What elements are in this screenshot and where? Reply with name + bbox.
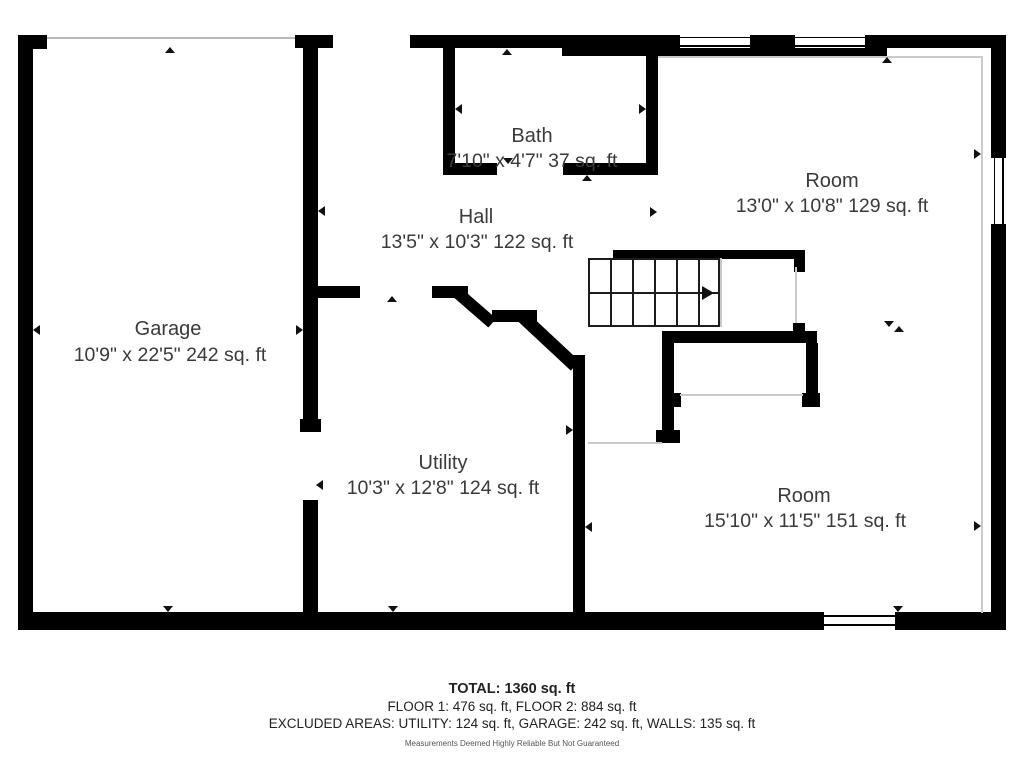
wall-top-between-windows <box>755 35 790 48</box>
wall-top-right <box>870 35 1006 48</box>
window-bottom <box>818 612 901 630</box>
wall-closet-left <box>662 343 674 430</box>
wall-right-lower <box>991 230 1006 630</box>
face-line-passage-bottom <box>588 442 662 444</box>
measure-arrow-mid-down <box>884 321 894 327</box>
measure-arrow-right-room-upper <box>974 149 981 159</box>
room-label-bath: Bath <box>511 125 552 147</box>
measure-arrow-right-garage <box>296 325 303 335</box>
wall-closet-top <box>662 331 817 343</box>
window-right <box>991 152 1006 230</box>
face-line-landing-right <box>795 267 797 323</box>
room-label-utility: Utility <box>419 452 468 474</box>
wall-hall-diag1 <box>452 287 496 328</box>
room-dims-room-upper: 13'0" x 10'8" 129 sq. ft <box>736 196 929 217</box>
wall-top-bath <box>410 35 675 48</box>
measure-arrow-left-bath <box>455 104 462 114</box>
room-label-room-upper: Room <box>805 170 858 192</box>
wall-right-upper <box>991 35 1006 152</box>
wall-bath-right <box>646 48 658 175</box>
wall-garage-top-cap <box>295 35 333 48</box>
face-line-room-right <box>981 56 983 613</box>
measure-arrow-mid-up <box>894 326 904 332</box>
measure-arrow-down-room-lower <box>893 606 903 612</box>
wall-top-inner-strip <box>562 48 887 56</box>
measure-arrow-left-room-lower <box>585 522 592 532</box>
window-top-2 <box>790 35 870 48</box>
room-dims-room-lower: 15'10" x 11'5" 151 sq. ft <box>704 511 906 532</box>
window-top-1 <box>675 35 755 48</box>
room-dims-garage: 10'9" x 22'5" 242 sq. ft <box>74 345 267 366</box>
wall-bottom-left <box>18 612 818 630</box>
stairs-direction-line <box>590 292 718 294</box>
room-dims-bath: 7'10" x 4'7" 37 sq. ft <box>447 151 618 172</box>
measure-arrow-left-garage <box>33 325 40 335</box>
summary-floors: FLOOR 1: 476 sq. ft, FLOOR 2: 884 sq. ft <box>0 698 1024 715</box>
wall-hall-diag2 <box>518 312 580 371</box>
wall-utility-right <box>573 355 585 612</box>
wall-closet-right-cap <box>802 393 820 407</box>
room-dims-hall: 13'5" x 10'3" 122 sq. ft <box>381 232 574 253</box>
wall-garage-cap <box>300 419 321 432</box>
measure-arrow-right-bath <box>639 104 646 114</box>
wall-left <box>18 35 33 630</box>
measure-arrow-up-garage <box>165 47 175 53</box>
stairs-arrow-icon <box>702 286 714 300</box>
face-line-room-top <box>658 56 982 58</box>
room-label-room-lower: Room <box>777 485 830 507</box>
staircase <box>588 258 720 327</box>
face-line-closet-bottom <box>680 394 803 396</box>
measure-arrow-down-garage <box>163 606 173 612</box>
measure-arrow-right-hall <box>650 207 657 217</box>
floor-plan: Garage 10'9" x 22'5" 242 sq. ft Bath 7'1… <box>0 0 1024 768</box>
wall-hall-seg1 <box>318 286 360 298</box>
wall-closet-right <box>806 343 818 393</box>
garage-door-line <box>47 37 295 39</box>
wall-garage-upper <box>303 48 318 432</box>
room-label-hall: Hall <box>459 206 493 228</box>
summary-total: TOTAL: 1360 sq. ft <box>0 681 1024 698</box>
summary-excluded: EXCLUDED AREAS: UTILITY: 124 sq. ft, GAR… <box>0 715 1024 732</box>
room-label-garage: Garage <box>135 318 202 340</box>
measure-arrow-up-hall-door <box>387 296 397 302</box>
measure-arrow-right-utility <box>566 425 573 435</box>
measure-arrow-right-room-lower <box>974 521 981 531</box>
summary-disclaimer: Measurements Deemed Highly Reliable But … <box>0 739 1024 748</box>
measure-arrow-left-utility <box>316 480 323 490</box>
measure-arrow-up-room-upper <box>882 57 892 63</box>
measure-arrow-left-hall <box>318 206 325 216</box>
face-line-landing-left <box>720 258 722 327</box>
room-dims-utility: 10'3" x 12'8" 124 sq. ft <box>347 478 540 499</box>
measure-arrow-down-utility <box>388 606 398 612</box>
summary-block: TOTAL: 1360 sq. ft FLOOR 1: 476 sq. ft, … <box>0 681 1024 748</box>
measure-arrow-up-bath-window <box>502 49 512 55</box>
wall-garage-lower <box>303 500 318 612</box>
measure-arrow-up-bath-outside <box>582 175 592 181</box>
